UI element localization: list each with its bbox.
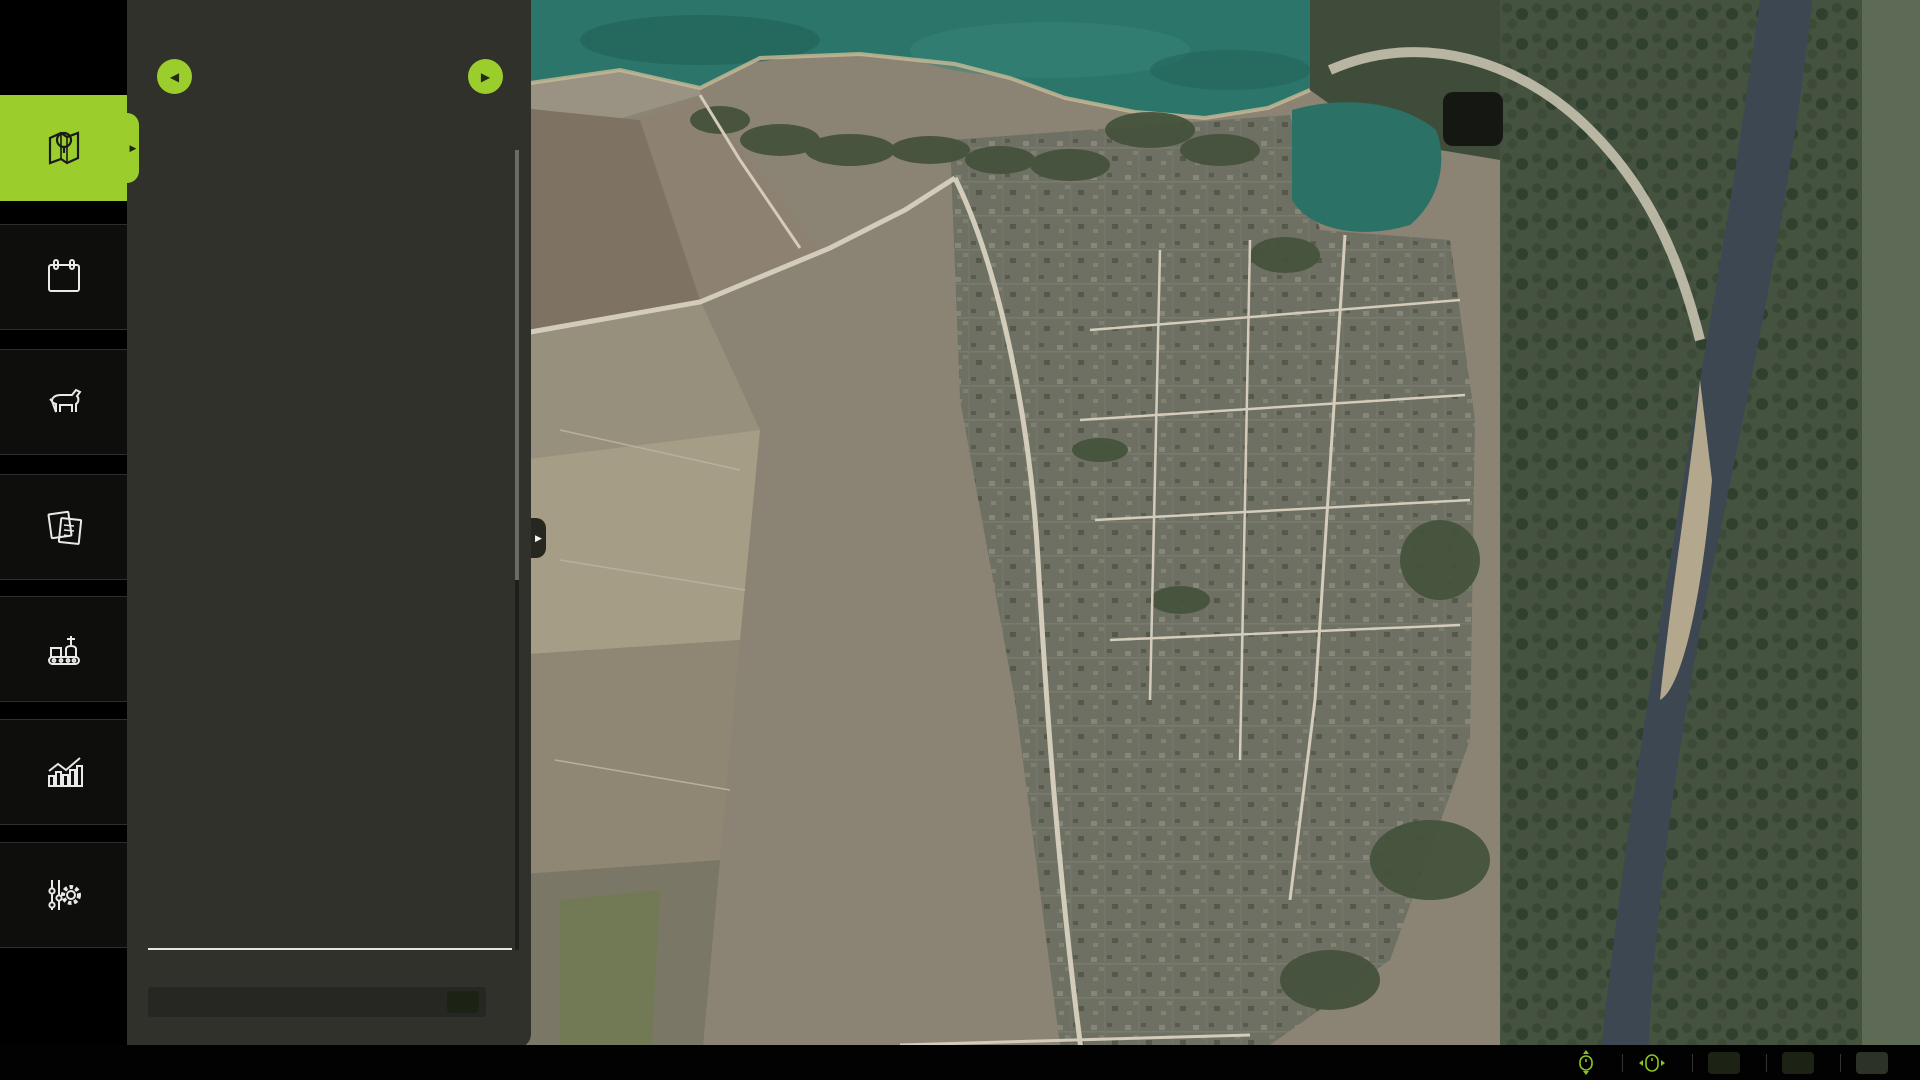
sidebar-item-map[interactable] [0,95,127,201]
hint-separator [1692,1054,1693,1072]
next-page-button[interactable]: ▶ [468,59,503,94]
deselect-all-button[interactable] [148,987,486,1017]
calendar-icon [36,249,92,305]
sidebar-selected-tab-arrow: ▶ [127,113,139,183]
hint-separator [1622,1054,1623,1072]
hint-previous-menu [1708,1052,1751,1074]
key-hint-e [1782,1052,1814,1074]
sidebar-item-animals[interactable] [0,349,127,455]
key-hint-esc [1856,1052,1888,1074]
sidebar-item-production[interactable] [0,596,127,702]
crop-types-panel: ◀ ▶ [127,0,531,1048]
balance-display [1443,92,1503,146]
sidebar-item-calendar[interactable] [0,224,127,330]
contracts-icon [36,499,92,555]
crop-type-list [148,177,516,949]
key-hint-w [447,991,479,1013]
cow-icon [36,374,92,430]
scrollbar-thumb[interactable] [515,150,519,580]
input-hint-bar [0,1045,1920,1080]
hint-separator [1840,1054,1841,1072]
mouse-pan-icon [1638,1052,1666,1074]
production-icon [36,621,92,677]
settings-icon [36,867,92,923]
hint-back [1856,1052,1899,1074]
map-pin-icon [36,120,92,176]
list-clip-divider [148,948,512,950]
sidebar-item-settings[interactable] [0,842,127,948]
key-hint-a [1708,1052,1740,1074]
sidebar [0,0,127,1048]
sidebar-item-statistics[interactable] [0,719,127,825]
hint-separator [1766,1054,1767,1072]
statistics-icon [36,744,92,800]
hint-next-menu [1782,1052,1825,1074]
sidebar-item-contracts[interactable] [0,474,127,580]
mouse-scroll-icon [1576,1049,1596,1076]
list-scrollbar[interactable] [515,150,519,950]
panel-collapse-tab[interactable]: ▶ [531,518,546,558]
hint-pan-map [1638,1052,1677,1074]
prev-page-button[interactable]: ◀ [157,59,192,94]
hint-zoom-map [1576,1049,1607,1076]
